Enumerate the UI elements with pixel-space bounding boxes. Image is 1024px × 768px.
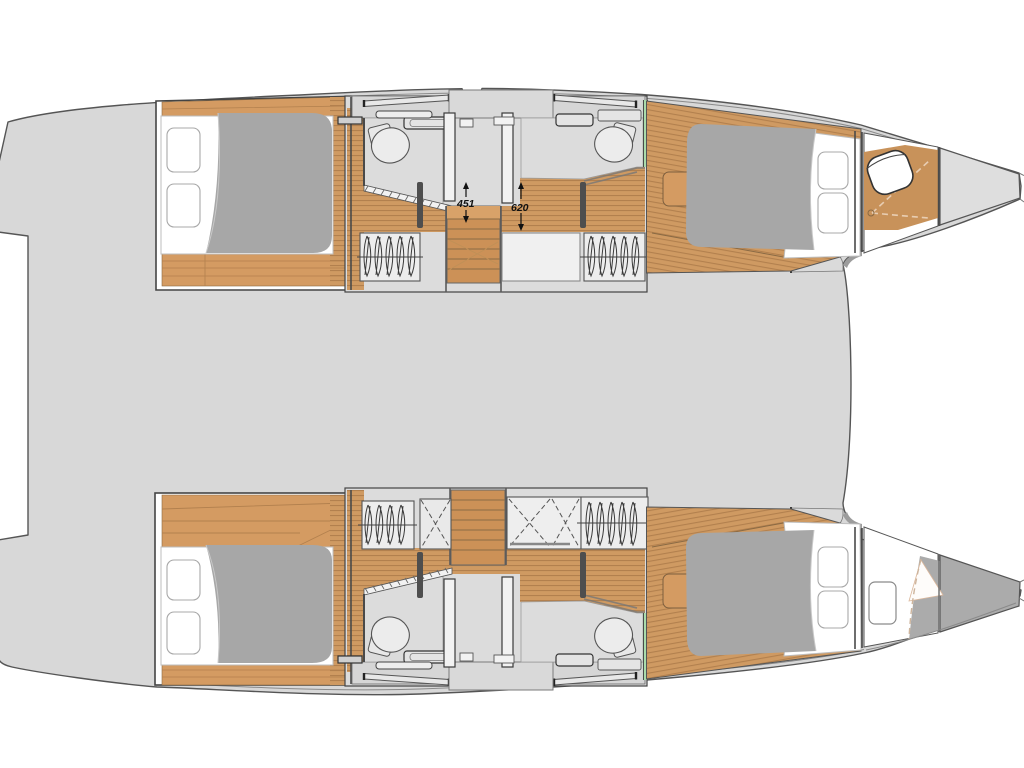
- svg-text:620: 620: [511, 202, 529, 214]
- svg-text:451: 451: [456, 198, 475, 210]
